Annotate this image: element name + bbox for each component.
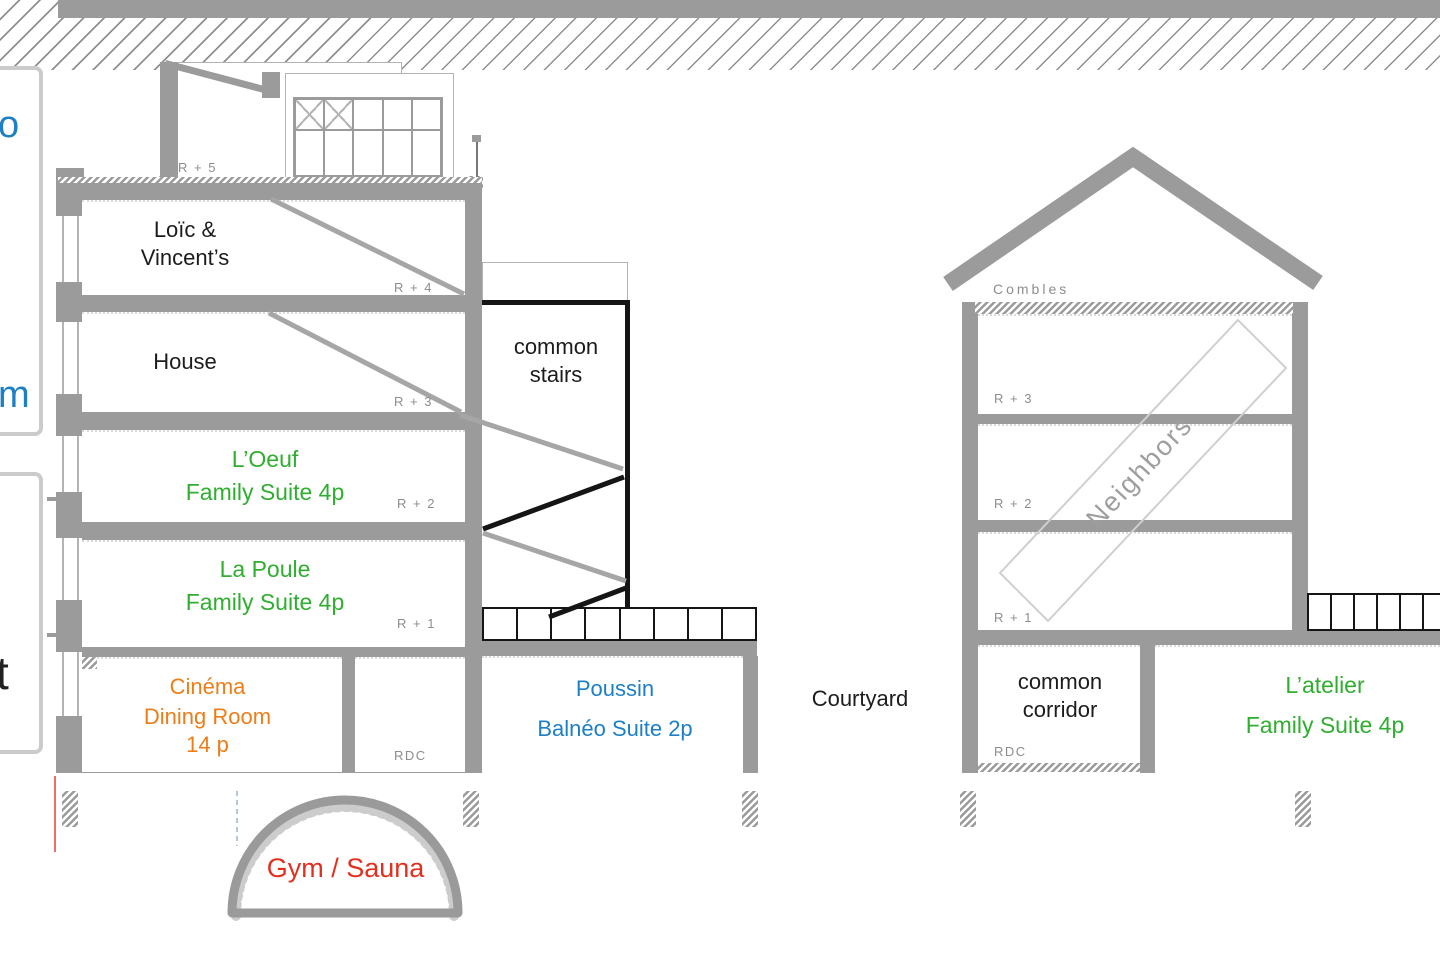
window-pane <box>412 99 441 130</box>
corridor-right-wall <box>1140 645 1155 773</box>
balustrade-cell <box>723 609 755 639</box>
balustrade-cell <box>1401 595 1424 629</box>
facade-spandrel <box>56 716 84 773</box>
balustrade-cell <box>1424 595 1440 629</box>
room-r4-label-line2: Vincent’s <box>80 245 290 271</box>
window-pane <box>412 130 441 176</box>
facade-window <box>62 322 79 394</box>
stairs-label-line2: stairs <box>486 362 626 388</box>
window-pane-crossed <box>295 99 324 130</box>
room-atelier <box>1155 645 1440 772</box>
roof-post <box>262 72 280 98</box>
atelier-roof-slab <box>1155 631 1440 645</box>
level-label-r2: R + 2 <box>397 496 436 511</box>
balustrade-cell <box>586 609 620 639</box>
room-cinema-label-line1: Cinéma <box>85 674 330 700</box>
balustrade-cell <box>1378 595 1401 629</box>
attic-label: Combles <box>993 281 1069 297</box>
window-sill-tick <box>47 497 57 501</box>
roof-gable-wall <box>160 62 178 182</box>
antenna-cap <box>472 135 481 142</box>
legend-letter-blue: o <box>0 104 19 147</box>
balustrade-cell <box>518 609 552 639</box>
conservatory-window-grid <box>293 97 443 178</box>
foundation-footing <box>960 791 976 827</box>
level-label-rdc-right: RDC <box>994 744 1027 759</box>
antenna-mast <box>476 140 478 180</box>
balustrade-cell <box>552 609 586 639</box>
terrace-surface <box>58 177 482 183</box>
foundation-footing <box>62 791 78 827</box>
corridor-floor-hatch <box>978 763 1140 772</box>
stair-balustrade <box>482 607 757 641</box>
balustrade-cell <box>484 609 518 639</box>
window-pane <box>383 130 412 176</box>
ground-slab <box>58 0 1440 18</box>
room-atelier-label-line1: L’atelier <box>1180 672 1440 699</box>
corridor-label-line1: common <box>980 669 1140 695</box>
facade-window <box>62 436 79 492</box>
stair-roof-outline <box>482 262 628 304</box>
room-r1-label-line2: Family Suite 4p <box>115 589 415 616</box>
courtyard-label: Courtyard <box>795 686 925 712</box>
foundation-footing <box>463 791 479 827</box>
level-label-rdc-left: RDC <box>394 748 427 763</box>
facade-spandrel <box>56 492 84 538</box>
corridor-left-wall <box>962 645 978 773</box>
balustrade-cell <box>655 609 689 639</box>
corridor-label-line2: corridor <box>980 697 1140 723</box>
window-pane <box>324 130 353 176</box>
foundation-footing <box>742 791 758 827</box>
attic-floor-hatch <box>975 302 1293 314</box>
window-sill-tick <box>47 633 57 637</box>
facade-window <box>62 538 79 600</box>
poussin-right-wall <box>743 656 758 773</box>
terrace-slab <box>58 180 482 200</box>
room-atelier-label-line2: Family Suite 4p <box>1180 712 1440 739</box>
room-r3-label: House <box>80 349 290 375</box>
window-pane <box>353 130 382 176</box>
facade-spandrel <box>56 394 84 436</box>
foundation-footing <box>1295 791 1311 827</box>
gable-roof <box>948 157 1318 284</box>
facade-window <box>62 216 79 282</box>
balustrade-cell <box>621 609 655 639</box>
gym-sauna-label: Gym / Sauna <box>258 853 433 884</box>
balustrade-cell <box>1332 595 1355 629</box>
atelier-balustrade <box>1307 593 1440 631</box>
level-label-right-r3: R + 3 <box>994 391 1033 406</box>
poussin-roof-slab <box>465 641 757 656</box>
room-poussin-label-line1: Poussin <box>495 676 735 702</box>
room-r4-label-line1: Loïc & <box>80 217 290 243</box>
window-pane-crossed <box>324 99 353 130</box>
balustrade-cell <box>1309 595 1332 629</box>
room-r1-label-line1: La Poule <box>115 556 415 583</box>
level-label-r5: R + 5 <box>178 160 217 175</box>
window-pane <box>353 99 382 130</box>
facade-spandrel <box>56 282 84 322</box>
legend-letter-orange: m <box>0 374 30 417</box>
stairs-label-line1: common <box>486 334 626 360</box>
room-r2-label-line1: L’Oeuf <box>115 446 415 473</box>
window-pane <box>383 99 412 130</box>
room-poussin <box>482 656 743 772</box>
level-label-r3: R + 3 <box>394 394 433 409</box>
level-label-r4: R + 4 <box>394 280 433 295</box>
facade-window <box>62 652 79 716</box>
room-r2-label-line2: Family Suite 4p <box>115 479 415 506</box>
wall-corner-hatch <box>82 657 97 669</box>
level-label-right-r1: R + 1 <box>994 610 1033 625</box>
facade-spandrel <box>56 600 84 652</box>
room-poussin-label-line2: Balnéo Suite 2p <box>495 716 735 742</box>
legend-box-lower <box>0 472 43 754</box>
balustrade-cell <box>689 609 723 639</box>
balustrade-cell <box>1355 595 1378 629</box>
legend-letter-black: t <box>0 646 9 700</box>
level-label-right-r2: R + 2 <box>994 496 1033 511</box>
building-section-drawing: Neighbors o m t R + 5 Loïc & Vincent’s R… <box>0 0 1440 960</box>
window-pane <box>295 130 324 176</box>
room-cinema-label-line2: Dining Room <box>85 704 330 730</box>
room-cinema-label-line3: 14 p <box>85 732 330 758</box>
level-label-r1: R + 1 <box>397 616 436 631</box>
